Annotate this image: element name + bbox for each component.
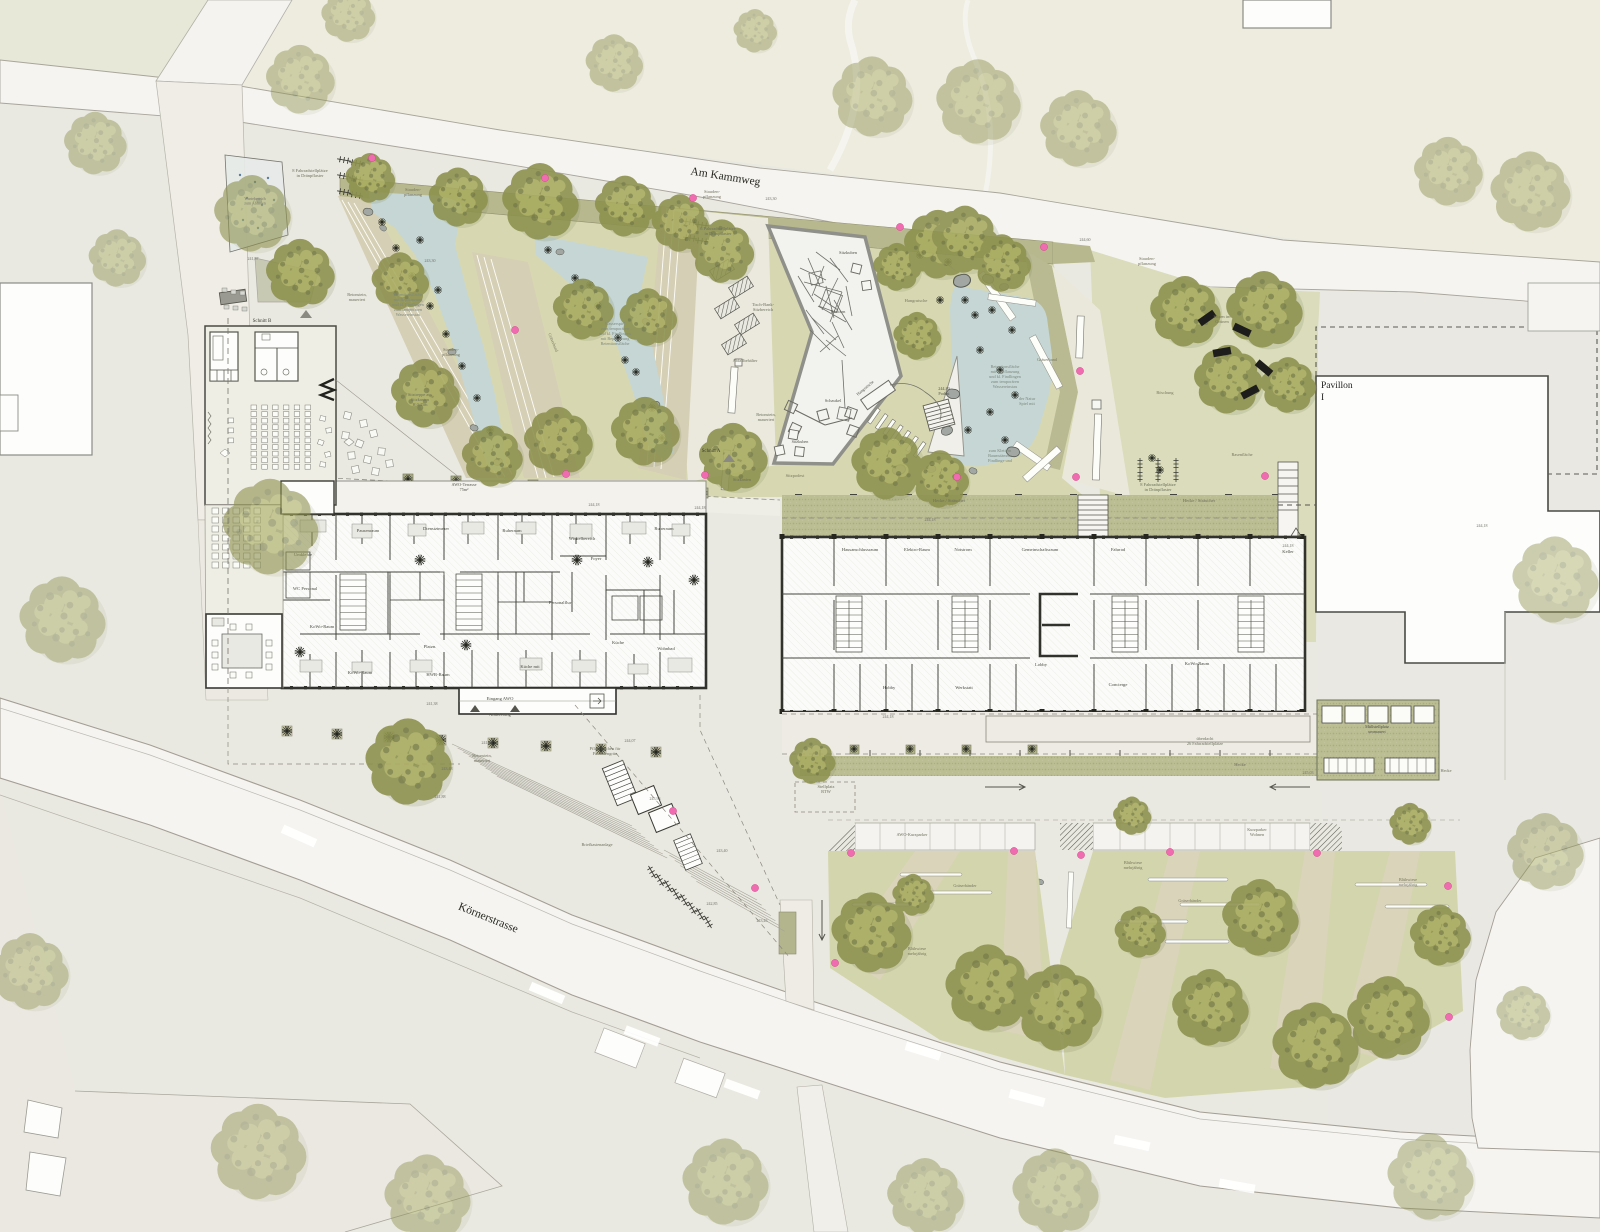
svg-text:Wohnen: Wohnen [1250, 832, 1265, 837]
svg-text:Sitzkanten: Sitzkanten [733, 477, 752, 482]
svg-text:Pavillon: Pavillon [1321, 381, 1353, 391]
svg-text:Schnitt A: Schnitt A [702, 449, 721, 454]
svg-text:I: I [1321, 393, 1324, 403]
svg-text:zum Abholen: zum Abholen [244, 201, 265, 206]
svg-text:Wassereinstau: Wassereinstau [396, 312, 421, 317]
svg-text:Hecke: Hecke [1234, 762, 1246, 767]
svg-text:Hangrutsche: Hangrutsche [905, 298, 928, 303]
svg-text:pflanzung: pflanzung [442, 352, 461, 357]
svg-text:WC Personal: WC Personal [293, 586, 318, 591]
svg-text:Abfallbehälter: Abfallbehälter [733, 358, 758, 363]
svg-text:RTW: RTW [821, 789, 831, 794]
svg-text:pflanzung: pflanzung [404, 192, 423, 197]
svg-text:Keller: Keller [1282, 549, 1294, 554]
svg-text:Wickelbereich: Wickelbereich [569, 536, 596, 541]
svg-text:Sitzkuben: Sitzkuben [792, 439, 810, 444]
svg-text:Briefkastenanlage: Briefkastenanlage [581, 842, 612, 847]
svg-text:AWO-Kurzparker: AWO-Kurzparker [897, 832, 928, 837]
svg-text:26 Fahrradstellplätze: 26 Fahrradstellplätze [1187, 741, 1223, 746]
svg-text:maueriert: maueriert [474, 758, 491, 763]
svg-text:Notstrom: Notstrom [954, 547, 972, 552]
svg-text:Anlieferung: Anlieferung [489, 712, 511, 717]
svg-text:Hausanschlussraum: Hausanschlussraum [842, 547, 879, 552]
svg-text:75m²: 75m² [460, 487, 469, 492]
svg-text:mehrjährig: mehrjährig [1399, 882, 1419, 887]
svg-text:Eingang AWO: Eingang AWO [487, 696, 514, 701]
svg-text:Elektro-Raum: Elektro-Raum [904, 547, 930, 552]
svg-text:Personalflur: Personalflur [549, 600, 572, 605]
svg-text:Küche mit: Küche mit [520, 664, 540, 669]
svg-text:mehrjährig: mehrjährig [1124, 865, 1144, 870]
svg-text:Spiel mit: Spiel mit [1019, 401, 1035, 406]
svg-text:Pausenraum: Pausenraum [357, 528, 380, 533]
svg-text:Schnitt B: Schnitt B [253, 319, 272, 324]
svg-text:Wohnbad: Wohnbad [657, 646, 675, 651]
svg-text:Sitzkuben: Sitzkuben [839, 250, 858, 255]
svg-text:Böschung: Böschung [1156, 390, 1174, 395]
svg-text:KoWo-Raum: KoWo-Raum [310, 624, 335, 629]
svg-text:HWR-Raum: HWR-Raum [426, 672, 450, 677]
svg-text:Rasenfläche: Rasenfläche [1232, 452, 1253, 457]
svg-text:Gräserbänder: Gräserbänder [953, 883, 977, 888]
svg-text:Hecke: Hecke [1441, 768, 1452, 773]
svg-text:Hecke / Sträucher: Hecke / Sträucher [933, 498, 966, 503]
svg-text:Ruheraum: Ruheraum [502, 528, 522, 533]
svg-text:Fahrrad: Fahrrad [1111, 547, 1126, 552]
svg-text:Wassereinstau: Wassereinstau [993, 384, 1018, 389]
svg-text:Foyer: Foyer [591, 556, 602, 561]
svg-text:Hobby: Hobby [883, 685, 896, 690]
svg-text:KoWo-Raum: KoWo-Raum [348, 670, 373, 675]
svg-text:maueriert: maueriert [758, 417, 775, 422]
svg-text:Dienstzimmer: Dienstzimmer [423, 526, 449, 531]
svg-text:pflanzung: pflanzung [703, 194, 722, 199]
svg-text:Fassadengrün: Fassadengrün [593, 751, 618, 756]
svg-text:KoWo-Raum: KoWo-Raum [1185, 661, 1210, 666]
svg-text:Grünen: Grünen [1215, 319, 1229, 324]
svg-text:Retentionsfläche: Retentionsfläche [601, 341, 630, 346]
svg-text:in Dränpflaster: in Dränpflaster [296, 173, 324, 178]
svg-text:Lobby: Lobby [1035, 662, 1048, 667]
svg-text:Gräserband: Gräserband [1037, 357, 1058, 362]
svg-text:pflanzung: pflanzung [1138, 261, 1157, 266]
svg-text:Concierge: Concierge [1109, 682, 1128, 687]
svg-text:in Dränpflaster: in Dränpflaster [1144, 487, 1172, 492]
svg-text:Schaukel: Schaukel [825, 398, 842, 403]
svg-text:Hecke / Sträucher: Hecke / Sträucher [1183, 498, 1216, 503]
svg-text:Klettern: Klettern [831, 309, 846, 314]
svg-text:ummauert: ummauert [1368, 729, 1386, 734]
svg-text:Gräserbänder: Gräserbänder [1178, 898, 1202, 903]
svg-text:mehrjährig: mehrjährig [908, 951, 928, 956]
svg-text:Sitzpodest: Sitzpodest [786, 473, 805, 478]
svg-text:Ruheraum: Ruheraum [654, 526, 674, 531]
svg-text:maueriert: maueriert [349, 297, 366, 302]
svg-text:Werkstatt: Werkstatt [955, 685, 973, 690]
svg-text:Findlinge und: Findlinge und [988, 458, 1013, 463]
svg-text:Gemeinschaftsraum: Gemeinschaftsraum [1022, 547, 1059, 552]
svg-text:Sitzbereich: Sitzbereich [753, 307, 774, 312]
svg-text:Platzn.: Platzn. [424, 644, 437, 649]
svg-text:Küche: Küche [612, 640, 624, 645]
svg-text:in Dränpflaster: in Dränpflaster [704, 231, 732, 236]
svg-text:Podest: Podest [938, 391, 950, 396]
